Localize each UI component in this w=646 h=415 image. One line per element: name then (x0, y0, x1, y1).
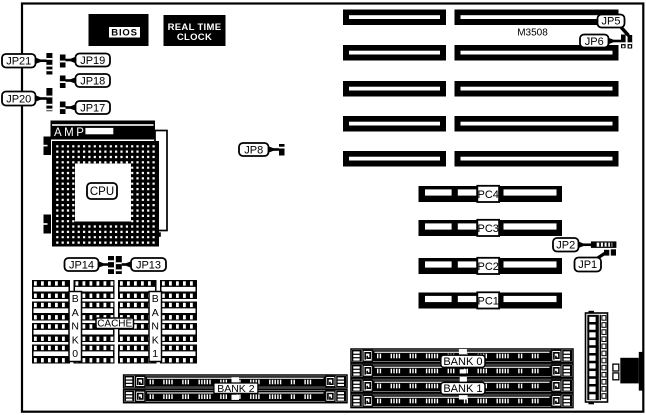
svg-text:AMP: AMP (54, 127, 86, 139)
svg-text:0: 0 (72, 348, 78, 360)
svg-text:BIOS: BIOS (111, 28, 137, 39)
svg-text:CPU: CPU (90, 186, 114, 198)
svg-text:JP6: JP6 (585, 36, 604, 48)
svg-text:JP21: JP21 (6, 56, 31, 68)
svg-text:BANK 1: BANK 1 (443, 383, 482, 395)
svg-text:JP5: JP5 (602, 15, 621, 27)
svg-text:M3508: M3508 (517, 28, 548, 39)
svg-text:B: B (72, 293, 79, 305)
svg-text:JP2: JP2 (556, 240, 575, 252)
svg-text:BANK 0: BANK 0 (443, 356, 482, 368)
svg-text:JP20: JP20 (6, 93, 31, 105)
svg-text:JP13: JP13 (136, 259, 161, 271)
svg-text:1: 1 (152, 348, 158, 360)
svg-text:PC2: PC2 (477, 261, 498, 273)
svg-text:PC1: PC1 (477, 296, 498, 308)
svg-text:K: K (152, 334, 159, 346)
svg-text:A: A (152, 307, 159, 319)
svg-text:JP17: JP17 (80, 102, 105, 114)
svg-text:JP18: JP18 (80, 75, 105, 87)
svg-text:N: N (151, 321, 159, 333)
svg-text:B: B (152, 293, 159, 305)
svg-text:PC3: PC3 (477, 223, 498, 235)
svg-text:CLOCK: CLOCK (177, 32, 212, 43)
svg-text:JP1: JP1 (578, 259, 597, 271)
svg-text:A: A (72, 307, 79, 319)
svg-text:BANK 2: BANK 2 (217, 383, 255, 395)
svg-text:PC4: PC4 (477, 189, 498, 201)
svg-text:JP19: JP19 (80, 55, 105, 67)
svg-text:N: N (71, 321, 79, 333)
svg-text:K: K (72, 334, 79, 346)
svg-text:CACHE: CACHE (97, 319, 132, 330)
svg-text:JP8: JP8 (244, 144, 263, 156)
svg-text:JP14: JP14 (69, 259, 94, 271)
